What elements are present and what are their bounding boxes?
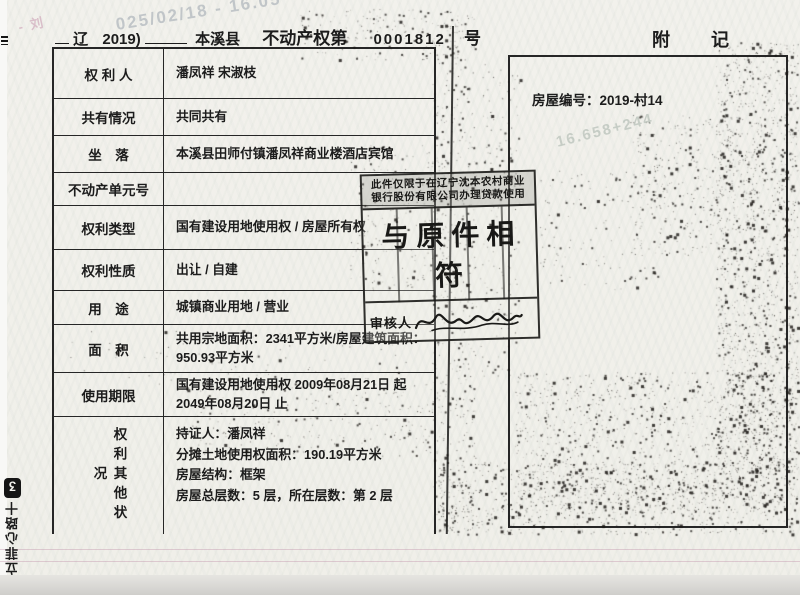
table-row: 共有情况 共同共有: [54, 99, 434, 136]
header-blank-underline-2: [145, 43, 187, 44]
house-number: 房屋编号：2019-村14: [532, 89, 663, 109]
scanned-certificate-page: 025/02/18 - 16.05 16.658+244 - 刘 辽 2019)…: [0, 0, 800, 595]
other-rights-vertical-label: 权利其他状况: [89, 419, 129, 532]
stamp-reviewer-label: 审核人: [370, 312, 413, 332]
row-label-holder: 权 利 人: [54, 49, 164, 98]
edge-logo-icon: ʒ: [4, 478, 21, 498]
edge-registration-tick: [1, 36, 8, 45]
other-rights-line-share: 分摊土地使用权面积：190.19平方米: [176, 446, 428, 465]
certificate-header: 辽 2019) 本溪县 不动产权第 0001812 号: [55, 24, 481, 49]
row-label-location: 坐 落: [54, 136, 164, 172]
scan-artifact-line: [0, 549, 800, 550]
row-value-co-ownership: 共同共有: [164, 99, 434, 135]
row-label-co-ownership: 共有情况: [54, 99, 164, 135]
row-label-unit-number: 不动产单元号: [54, 173, 164, 205]
row-value-other-rights: 持证人：潘凤祥 分摊土地使用权面积：190.19平方米 房屋结构：框架 房屋总层…: [164, 417, 434, 509]
header-number-suffix: 号: [464, 29, 481, 48]
scan-artifact-line: [0, 561, 800, 562]
notes-box: 房屋编号：2019-村14: [508, 55, 788, 528]
table-row: 使用期限 国有建设用地使用权 2009年08月21日 起 2049年08月20日…: [54, 373, 434, 417]
table-row: 权 利 人 潘凤祥 宋淑枝: [54, 49, 434, 99]
table-row: 权利其他状况 持证人：潘凤祥 分摊土地使用权面积：190.19平方米 房屋结构：…: [54, 417, 434, 534]
row-value-location: 本溪县田师付镇潘凤祥商业楼酒店宾馆: [164, 136, 434, 172]
table-row: 坐 落 本溪县田师付镇潘凤祥商业楼酒店宾馆: [54, 136, 434, 173]
edge-stamp-block: ʒ 立菲心路十: [2, 478, 22, 575]
header-doc-type: 不动产权第: [262, 29, 347, 48]
header-year: 2019): [102, 31, 140, 48]
row-label-right-type: 权利类型: [54, 206, 164, 249]
row-label-right-nature: 权利性质: [54, 250, 164, 290]
stamp-restriction-text: 此件仅限于在辽宁沈本农村商业 银行股份有限公司办理贷款使用: [362, 172, 535, 211]
other-rights-line-structure: 房屋结构：框架: [176, 466, 428, 485]
row-value-term: 国有建设用地使用权 2009年08月21日 起 2049年08月20日 止: [164, 373, 434, 416]
scan-bottom-margin: [0, 575, 800, 595]
header-province: 辽: [73, 31, 88, 48]
row-value-holder: 潘凤祥 宋淑枝: [164, 49, 434, 98]
corner-watermark-fragment: - 刘: [16, 11, 46, 35]
row-label-other-rights: 权利其他状况: [54, 417, 164, 534]
row-label-area: 面 积: [54, 325, 164, 372]
certificate-number: 0001812: [373, 31, 445, 48]
other-rights-line-floors: 房屋总层数：5 层，所在层数：第 2 层: [176, 487, 428, 506]
header-blank-underline: [55, 43, 69, 44]
stamp-signature-row: 审核人: [365, 299, 538, 342]
edge-vertical-text: 立菲心路十: [3, 500, 22, 575]
stamp-main-text: 与原件相符: [363, 206, 538, 304]
reviewer-signature: [411, 303, 524, 336]
bank-verification-stamp: 此件仅限于在辽宁沈本农村商业 银行股份有限公司办理贷款使用 与原件相符 审核人: [360, 170, 541, 344]
notes-title: 附 记: [652, 26, 747, 52]
other-rights-line-holder: 持证人：潘凤祥: [176, 425, 428, 444]
row-label-use: 用 途: [54, 291, 164, 324]
row-label-term: 使用期限: [54, 373, 164, 416]
